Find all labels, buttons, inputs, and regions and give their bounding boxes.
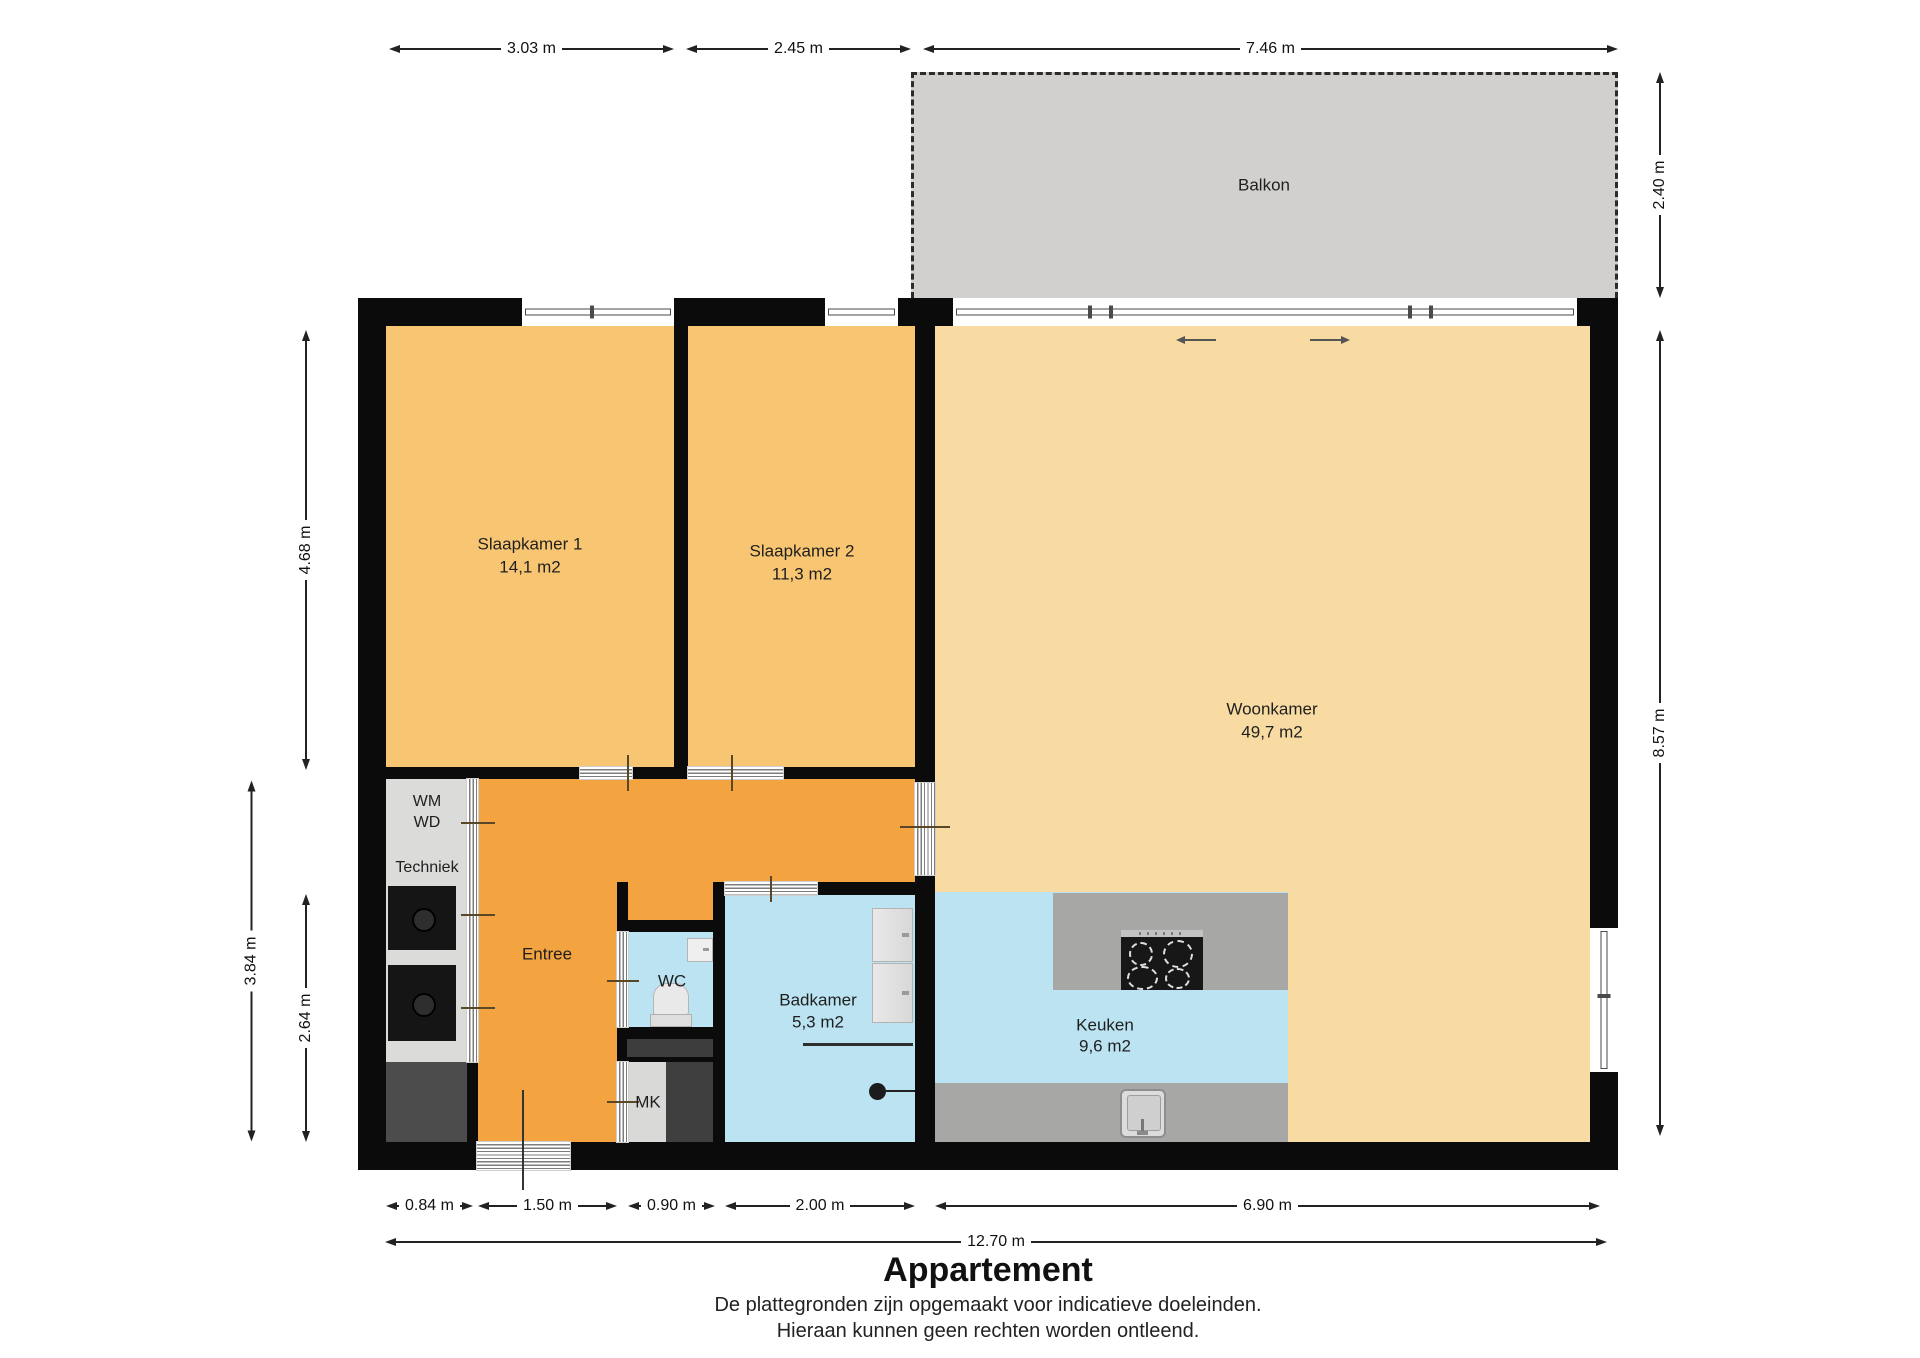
balcony-label: Balkon	[1238, 177, 1290, 196]
burner-icon	[1163, 940, 1193, 968]
window-icon	[522, 298, 674, 326]
dim-bottom-1: 0.84 m	[386, 1199, 467, 1213]
room-area-slaapkamer1: 14,1 m2	[499, 559, 560, 578]
burner-icon	[1129, 942, 1153, 966]
disclaimer-line1: De plattegronden zijn opgemaakt voor ind…	[714, 1294, 1261, 1317]
room-label-woonkamer: Woonkamer	[1226, 701, 1317, 720]
room-label-badkamer: Badkamer	[779, 992, 856, 1011]
room-area-slaapkamer2: 11,3 m2	[772, 566, 832, 585]
wall	[358, 298, 386, 1170]
cooktop-control-strip	[1121, 930, 1203, 937]
wc-basin-icon	[687, 938, 713, 962]
room-label-slaapkamer2: Slaapkamer 2	[750, 543, 855, 562]
room-label-wc: WC	[658, 973, 686, 992]
wall	[467, 1062, 478, 1142]
room-area-woonkamer: 49,7 m2	[1241, 724, 1302, 743]
washbasin-icon	[872, 908, 913, 962]
door-tick	[607, 980, 639, 982]
room-label-mk: MK	[635, 1094, 661, 1113]
passage-entree-woonkamer	[915, 783, 935, 875]
dim-left-3: 2.64 m	[299, 894, 313, 1142]
shower-partition-line	[803, 1043, 913, 1046]
door-tick	[607, 1101, 639, 1103]
dim-bottom-2: 1.50 m	[478, 1199, 617, 1213]
burner-icon	[1127, 966, 1158, 990]
sink-basin	[1127, 1095, 1161, 1131]
door-opening-slaapkamer2	[688, 767, 783, 779]
window-frame-mark	[1088, 306, 1092, 319]
wall	[628, 920, 713, 932]
window-frame-mark	[1109, 306, 1113, 319]
kitchen-sink	[1120, 1089, 1166, 1138]
cooktop	[1121, 930, 1203, 990]
dim-bottom-4: 2.00 m	[725, 1199, 915, 1213]
room-label-techniek: Techniek	[395, 859, 458, 877]
dryer-icon	[388, 965, 456, 1041]
wall	[674, 326, 688, 779]
radiator-inset	[627, 1039, 713, 1057]
wall	[915, 326, 935, 1142]
window-glass	[525, 309, 671, 316]
window-glass	[956, 309, 1574, 316]
door-tick	[461, 1007, 495, 1009]
wall	[713, 895, 725, 1142]
burner-icon	[1165, 968, 1190, 989]
room-entree-nook	[628, 879, 713, 920]
window-frame-mark	[1408, 306, 1412, 319]
door-tick	[461, 822, 495, 824]
slide-direction-right-icon	[1310, 336, 1350, 344]
dryer-door-icon	[412, 993, 436, 1017]
window-frame-mark	[590, 306, 594, 319]
dim-top-1: 3.03 m	[389, 42, 674, 56]
washbasin-icon	[872, 963, 913, 1023]
dim-right-balkon: 2.40 m	[1653, 72, 1667, 298]
entrance-door-tick	[522, 1090, 524, 1190]
window-icon	[1590, 928, 1618, 1072]
door-tick	[770, 876, 772, 902]
wall	[386, 767, 915, 779]
door-leaf-line	[884, 1090, 915, 1092]
toilet-tank	[650, 1014, 692, 1027]
techniek-corner-block	[386, 1062, 467, 1142]
door-tick	[461, 914, 495, 916]
window-icon	[825, 298, 898, 326]
door-opening-slaapkamer1	[580, 767, 632, 779]
mk-shaft-dark	[666, 1062, 713, 1142]
dim-top-3: 7.46 m	[923, 42, 1618, 56]
washing-machine-icon	[388, 886, 456, 950]
dim-left-2: 3.84 m	[245, 781, 259, 1142]
slide-direction-left-icon	[1176, 336, 1216, 344]
room-label-keuken: Keuken	[1076, 1017, 1134, 1036]
faucet-mark	[902, 933, 909, 937]
room-area-badkamer: 5,3 m2	[792, 1014, 844, 1033]
dim-bottom-total: 12.70 m	[385, 1235, 1607, 1249]
sliding-door-icon	[953, 298, 1577, 326]
sink-faucet-base	[1137, 1131, 1148, 1135]
kitchen-bottom-counter	[935, 1083, 1288, 1142]
room-label-entree: Entree	[522, 946, 572, 965]
wall	[617, 882, 628, 932]
window-frame-mark	[1598, 994, 1611, 998]
dim-left-1: 4.68 m	[299, 330, 313, 770]
page-title: Appartement	[883, 1251, 1093, 1290]
door-tick	[627, 755, 629, 791]
washer-door-icon	[412, 908, 436, 932]
room-label-slaapkamer1: Slaapkamer 1	[478, 536, 583, 555]
dim-bottom-3: 0.90 m	[628, 1199, 713, 1213]
window-glass	[828, 309, 895, 316]
door-tick	[731, 755, 733, 791]
disclaimer-line2: Hieraan kunnen geen rechten worden ontle…	[777, 1320, 1200, 1343]
dim-bottom-5: 6.90 m	[935, 1199, 1600, 1213]
label-wd: WD	[414, 814, 441, 832]
faucet-mark	[703, 948, 709, 951]
faucet-mark	[902, 991, 909, 995]
dim-right-height: 8.57 m	[1653, 330, 1667, 1136]
window-glass	[1601, 931, 1608, 1069]
label-wm: WM	[413, 793, 441, 811]
window-frame-mark	[1429, 306, 1433, 319]
room-area-keuken: 9,6 m2	[1079, 1038, 1131, 1057]
floor-plan: Balkon	[0, 0, 1920, 1358]
door-tick	[900, 826, 950, 828]
dim-top-2: 2.45 m	[686, 42, 911, 56]
